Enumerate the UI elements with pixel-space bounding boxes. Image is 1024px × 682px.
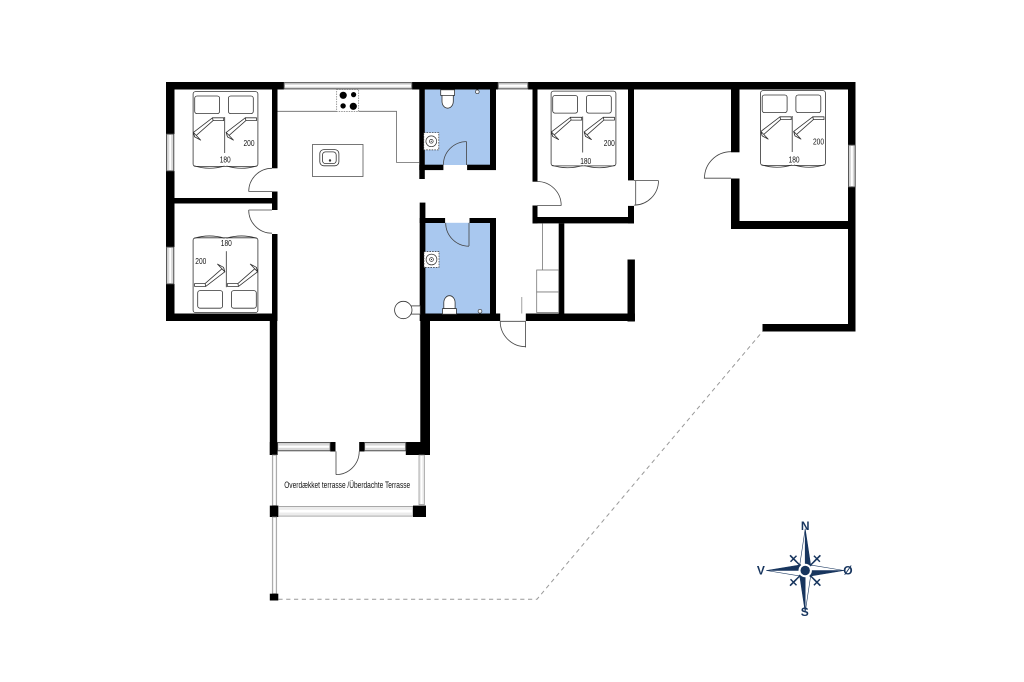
svg-text:V: V xyxy=(757,564,765,578)
svg-text:Ø: Ø xyxy=(843,564,852,578)
svg-text:180: 180 xyxy=(221,239,232,248)
svg-text:Overdækket terrasse /Überdacht: Overdækket terrasse /Überdachte Terrasse xyxy=(284,480,410,490)
svg-text:200: 200 xyxy=(244,139,255,148)
svg-text:200: 200 xyxy=(604,139,615,148)
svg-text:180: 180 xyxy=(580,157,591,166)
svg-text:200: 200 xyxy=(195,257,206,266)
svg-text:200: 200 xyxy=(813,138,824,147)
svg-text:N: N xyxy=(801,519,810,533)
svg-text:180: 180 xyxy=(220,156,231,165)
svg-text:180: 180 xyxy=(789,156,800,165)
svg-text:S: S xyxy=(801,605,809,619)
